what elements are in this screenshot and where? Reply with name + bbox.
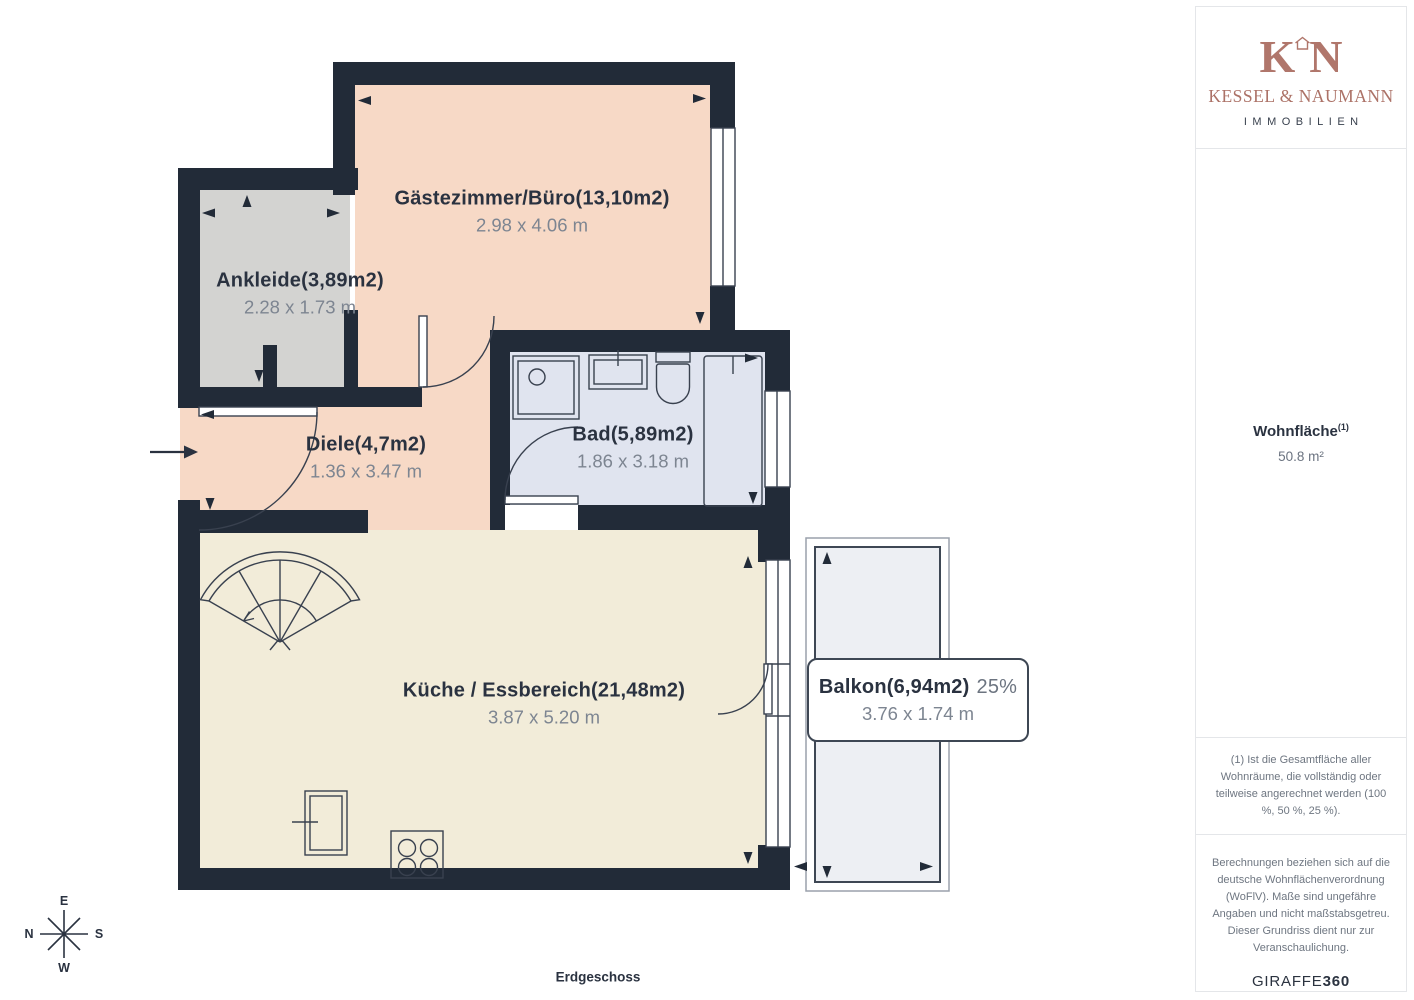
company-name: KESSEL & NAUMANN: [1208, 86, 1393, 107]
room-label-kueche: Küche / Essbereich(21,48m2) 3.87 x 5.20 …: [403, 680, 685, 729]
room-name: Gästezimmer/Büro(13,10m2): [394, 188, 669, 211]
living-area-value: 50.8 m²: [1278, 449, 1324, 464]
living-area-label-text: Wohnfläche: [1253, 423, 1338, 440]
brand-suffix: 360: [1323, 973, 1350, 990]
balkon-share: 25%: [977, 676, 1018, 698]
footnote-section: (1) Ist die Gesamtfläche aller Wohnräume…: [1196, 738, 1406, 835]
giraffe360-brand: GIRAFFE360: [1196, 973, 1406, 990]
floor-title: Erdgeschoss: [556, 970, 641, 985]
room-dimensions: 3.76 x 1.74 m: [809, 703, 1027, 725]
floorplan-page: E N S W Gästezimmer/Büro(13,10m2) 2.98 x…: [0, 0, 1414, 1000]
room-name: Küche / Essbereich(21,48m2): [403, 680, 685, 703]
living-area-section: Wohnfläche(1) 50.8 m²: [1196, 149, 1406, 738]
window-bad: [765, 391, 790, 487]
logo-monogram: K N: [1259, 34, 1342, 80]
room-dimensions: 2.98 x 4.06 m: [394, 215, 669, 237]
footnote-text: (1) Ist die Gesamtfläche aller Wohnräume…: [1196, 752, 1406, 820]
room-dimensions: 2.28 x 1.73 m: [216, 297, 384, 319]
room-label-ankleide: Ankleide(3,89m2) 2.28 x 1.73 m: [216, 270, 384, 319]
room-name: Bad(5,89m2): [572, 424, 693, 447]
compass-rose-icon: E N S W: [24, 894, 103, 975]
disclaimer-section: Berechnungen beziehen sich auf die deuts…: [1196, 835, 1406, 991]
room-label-diele: Diele(4,7m2) 1.36 x 3.47 m: [306, 434, 426, 483]
company-tagline: IMMOBILIEN: [1238, 116, 1363, 128]
compass-left-label: N: [24, 927, 33, 941]
info-sidebar: K N KESSEL & NAUMANN IMMOBILIEN Wohnfläc…: [1190, 0, 1414, 1000]
compass-right-label: S: [95, 927, 103, 941]
sidebar-panel: K N KESSEL & NAUMANN IMMOBILIEN Wohnfläc…: [1195, 6, 1407, 992]
room-dimensions: 1.86 x 3.18 m: [572, 451, 693, 473]
room-name: Ankleide(3,89m2): [216, 270, 384, 293]
disclaimer-text: Berechnungen beziehen sich auf die deuts…: [1196, 855, 1406, 957]
room-dimensions: 3.87 x 5.20 m: [403, 707, 685, 729]
floorplan-drawing: E N S W: [0, 0, 1190, 1000]
monogram-letter-n: N: [1309, 34, 1342, 80]
living-area-footref: (1): [1338, 422, 1349, 432]
room-label-balkon: Balkon(6,94m2)25% 3.76 x 1.74 m: [807, 658, 1029, 742]
room-label-bad: Bad(5,89m2) 1.86 x 3.18 m: [572, 424, 693, 473]
compass-bottom-label: W: [58, 961, 70, 975]
balkon-name: Balkon(6,94m2): [819, 676, 970, 698]
monogram-letter-k: K: [1259, 34, 1295, 80]
room-name: Balkon(6,94m2)25%: [809, 676, 1027, 699]
window-gaestezimmer: [711, 128, 735, 286]
room-name: Diele(4,7m2): [306, 434, 426, 457]
logo-section: K N KESSEL & NAUMANN IMMOBILIEN: [1196, 7, 1406, 149]
floorplan-canvas: E N S W Gästezimmer/Büro(13,10m2) 2.98 x…: [0, 0, 1190, 1000]
room-label-gaestezimmer: Gästezimmer/Büro(13,10m2) 2.98 x 4.06 m: [394, 188, 669, 237]
living-area-label: Wohnfläche(1): [1253, 422, 1349, 440]
room-dimensions: 1.36 x 3.47 m: [306, 461, 426, 483]
brand-name: GIRAFFE: [1252, 973, 1323, 990]
compass-top-label: E: [60, 894, 68, 908]
